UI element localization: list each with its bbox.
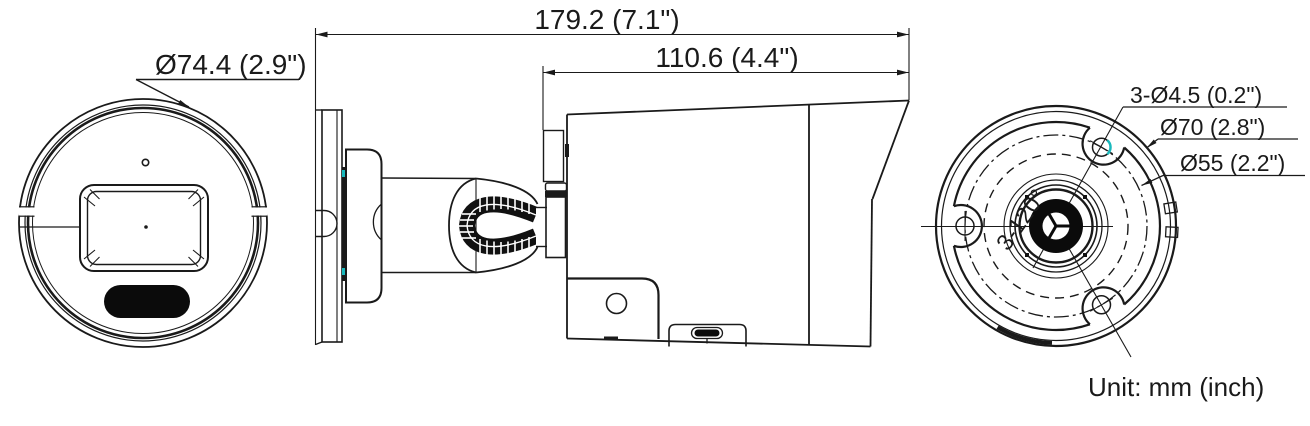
- hole-accent-mark: [1107, 140, 1110, 154]
- bolt-circle-callout: Ø70 (2.8"): [1147, 114, 1299, 148]
- camera-body: [565, 101, 909, 347]
- bezel-seam-left: [19, 207, 35, 216]
- rear-view: 3-120°: [921, 106, 1178, 357]
- circle-55-label: Ø55 (2.2"): [1180, 150, 1285, 176]
- rear-seam-tick: [565, 144, 569, 157]
- dim-front-length: 110.6 (4.4"): [543, 42, 909, 130]
- reset-button: [607, 294, 627, 314]
- lens-center-dot: [144, 225, 148, 229]
- mount-base: [346, 150, 382, 303]
- ir-window: [104, 285, 190, 318]
- front-diameter-callout: Ø74.4 (2.9"): [136, 49, 307, 107]
- lens-window: [80, 185, 208, 271]
- cable-notch: [316, 211, 338, 237]
- mount-holes-label: 3-Ø4.5 (0.2"): [1130, 82, 1262, 108]
- side-view: [316, 101, 910, 347]
- camera-dimension-drawing: Ø74.4 (2.9") 179.2 (7.1") 110.6 (4.4"): [0, 0, 1310, 426]
- front-length-label: 110.6 (4.4"): [655, 42, 798, 73]
- unit-note: Unit: mm (inch): [1088, 372, 1264, 402]
- front-view: [19, 99, 268, 347]
- bezel-seam-right: [252, 207, 268, 216]
- overall-length-label: 179.2 (7.1"): [534, 4, 679, 35]
- front-diameter-label: Ø74.4 (2.9"): [155, 49, 307, 80]
- drawing-canvas: Ø74.4 (2.9") 179.2 (7.1") 110.6 (4.4"): [0, 0, 1310, 426]
- ball-joint: [449, 179, 547, 273]
- mount-plate: [316, 110, 343, 345]
- mount-holes-callout: 3-Ø4.5 (0.2"): [1123, 82, 1287, 108]
- bottom-panel: [567, 279, 659, 340]
- circle-70-label: Ø70 (2.8"): [1160, 114, 1265, 140]
- hinge-block: [544, 131, 568, 258]
- mic-hole: [142, 159, 148, 165]
